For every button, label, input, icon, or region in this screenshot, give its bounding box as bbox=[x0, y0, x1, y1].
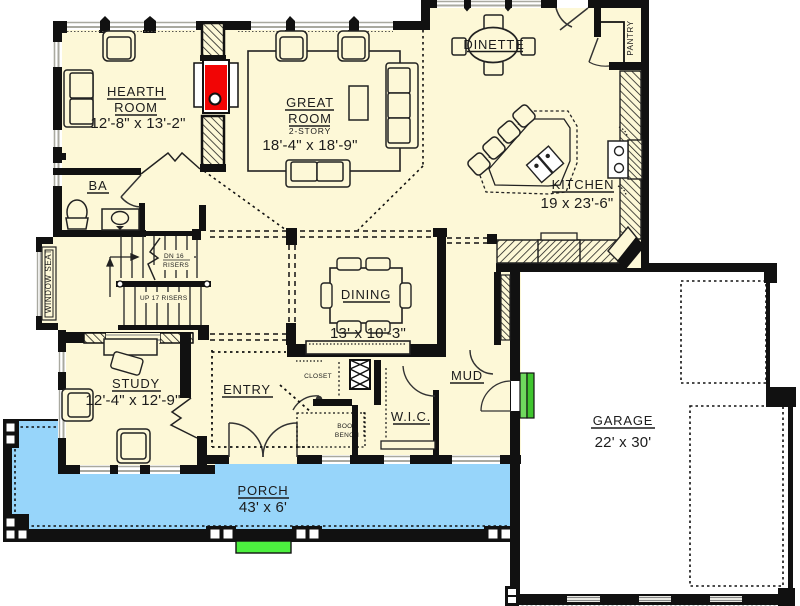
svg-text:CLOSET: CLOSET bbox=[304, 373, 332, 380]
svg-text:2-STORY: 2-STORY bbox=[289, 126, 331, 136]
svg-text:GARAGE: GARAGE bbox=[593, 413, 653, 428]
svg-text:13' x 10'-3": 13' x 10'-3" bbox=[330, 325, 406, 342]
svg-text:22' x 30': 22' x 30' bbox=[595, 434, 652, 451]
svg-text:GREAT: GREAT bbox=[286, 95, 334, 110]
svg-text:DINETTE: DINETTE bbox=[463, 37, 524, 52]
svg-text:KITCHEN: KITCHEN bbox=[552, 177, 615, 192]
svg-text:STUDY: STUDY bbox=[112, 376, 160, 391]
svg-text:12'-8" x 13'-2": 12'-8" x 13'-2" bbox=[90, 115, 185, 132]
svg-text:ENTRY: ENTRY bbox=[223, 382, 271, 397]
svg-text:12'-4" x 12'-9": 12'-4" x 12'-9" bbox=[85, 392, 180, 409]
svg-text:MUD: MUD bbox=[451, 368, 483, 383]
svg-text:UP 17 RISERS: UP 17 RISERS bbox=[140, 295, 188, 302]
svg-text:PANTRY: PANTRY bbox=[626, 20, 635, 55]
svg-text:ROOM: ROOM bbox=[114, 100, 158, 115]
svg-text:HEARTH: HEARTH bbox=[107, 84, 165, 99]
svg-text:DN 16: DN 16 bbox=[164, 253, 184, 260]
svg-text:W.I.C.: W.I.C. bbox=[391, 409, 431, 424]
svg-text:19 x 23'-6": 19 x 23'-6" bbox=[541, 195, 614, 212]
svg-text:BA: BA bbox=[89, 178, 108, 193]
svg-text:43' x 6': 43' x 6' bbox=[239, 499, 287, 516]
svg-text:WINDOW SEAT: WINDOW SEAT bbox=[44, 249, 53, 313]
svg-text:PORCH: PORCH bbox=[238, 483, 289, 498]
svg-text:18'-4" x 18'-9": 18'-4" x 18'-9" bbox=[262, 137, 357, 154]
svg-text:ROOM: ROOM bbox=[288, 111, 332, 126]
svg-text:DINING: DINING bbox=[341, 287, 391, 302]
svg-text:RISERS: RISERS bbox=[163, 262, 189, 269]
